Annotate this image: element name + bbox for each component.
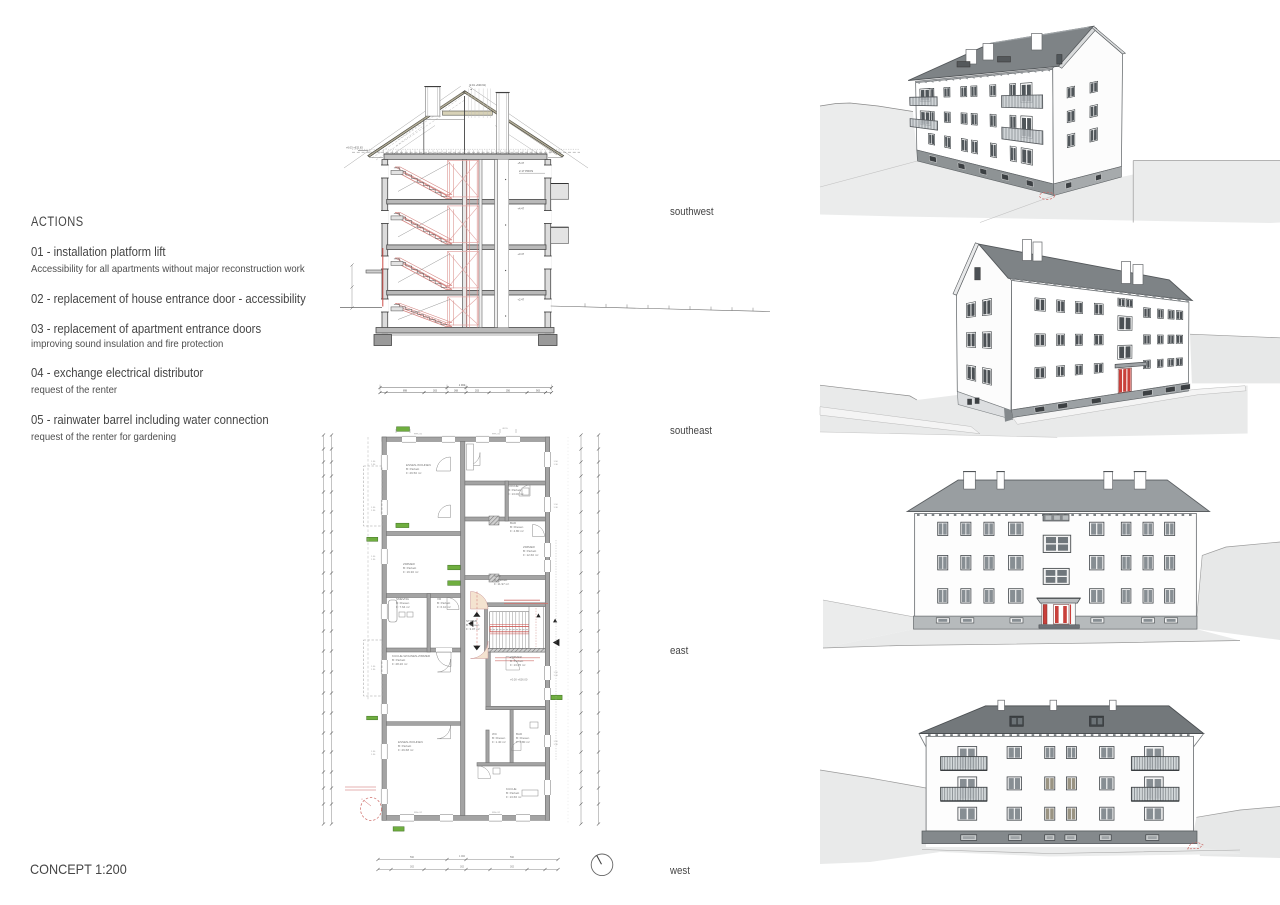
svg-text:+5.47: +5.47 — [518, 161, 525, 165]
svg-text:x: x — [361, 798, 363, 801]
svg-text:302: 302 — [460, 866, 465, 869]
svg-text:F: 4.80 m²: F: 4.80 m² — [516, 740, 530, 744]
svg-text:FFH+92: FFH+92 — [492, 434, 501, 436]
svg-text:(2.91 +630.91): (2.91 +630.91) — [469, 83, 486, 87]
svg-text:F: 6.10 m²: F: 6.10 m² — [437, 605, 451, 609]
svg-text:203: 203 — [475, 390, 480, 393]
svg-text:1.30: 1.30 — [371, 464, 376, 466]
svg-text:590: 590 — [410, 856, 415, 859]
svg-text:303: 303 — [433, 390, 438, 393]
svg-text:356: 356 — [506, 390, 511, 393]
svg-text:F: 3.07 m²: F: 3.07 m² — [466, 627, 480, 631]
svg-text:F: 28.20 m²: F: 28.20 m² — [392, 662, 407, 666]
svg-text:1 002: 1 002 — [459, 855, 466, 858]
svg-text:1.50: 1.50 — [554, 504, 559, 506]
svg-text:F: 13.00 m²: F: 13.00 m² — [508, 492, 523, 496]
svg-text:903: 903 — [536, 390, 541, 393]
svg-text:302: 302 — [510, 866, 515, 869]
svg-text:FFH+92: FFH+92 — [414, 812, 423, 814]
svg-text:2.17 PROS: 2.17 PROS — [519, 169, 533, 173]
svg-text:F: 13.05 m²: F: 13.05 m² — [510, 663, 525, 667]
svg-text:F: 7.64 m²: F: 7.64 m² — [396, 605, 410, 609]
svg-text:898: 898 — [403, 390, 408, 393]
svg-text:F: 4.80 m²: F: 4.80 m² — [510, 529, 524, 533]
svg-text:F: 11.97 m²: F: 11.97 m² — [494, 582, 509, 586]
svg-text:1.30: 1.30 — [371, 754, 376, 756]
svg-text:1.30: 1.30 — [371, 559, 376, 561]
svg-text:1.50: 1.50 — [371, 461, 376, 463]
svg-text:F: 12.60 m²: F: 12.60 m² — [523, 553, 538, 557]
svg-text:48 55: 48 55 — [502, 428, 508, 430]
svg-text:+4.47: +4.47 — [518, 206, 525, 210]
svg-text:F: 29.50 m²: F: 29.50 m² — [406, 471, 421, 475]
svg-text:F: 1.40 m²: F: 1.40 m² — [492, 740, 506, 744]
svg-text:▲: ▲ — [470, 88, 472, 91]
svg-text:1.50: 1.50 — [554, 461, 559, 463]
svg-text:1.50: 1.50 — [371, 556, 376, 558]
svg-text:590: 590 — [510, 856, 515, 859]
svg-text:1.50: 1.50 — [371, 666, 376, 668]
svg-text:302: 302 — [410, 866, 415, 869]
svg-text:F: 13.66 m²: F: 13.66 m² — [506, 795, 521, 799]
svg-text:+0.00 +626.00: +0.00 +626.00 — [510, 678, 528, 682]
svg-text:FFH+92: FFH+92 — [492, 812, 501, 814]
svg-text:FFH+92: FFH+92 — [414, 434, 423, 436]
svg-text:1.30: 1.30 — [554, 464, 559, 466]
svg-text:+2.47: +2.47 — [518, 297, 525, 301]
svg-text:1.50: 1.50 — [371, 751, 376, 753]
svg-text:1.30: 1.30 — [554, 507, 559, 509]
svg-text:1.30: 1.30 — [371, 510, 376, 512]
svg-text:1.50: 1.50 — [371, 507, 376, 509]
svg-text:1 002: 1 002 — [459, 383, 466, 387]
svg-text:F: 19.30 m²: F: 19.30 m² — [403, 570, 418, 574]
svg-text:368: 368 — [454, 390, 459, 393]
svg-text:+3.47: +3.47 — [518, 252, 525, 256]
svg-text:F: 29.68 m²: F: 29.68 m² — [398, 748, 413, 752]
svg-text:1.30: 1.30 — [371, 669, 376, 671]
